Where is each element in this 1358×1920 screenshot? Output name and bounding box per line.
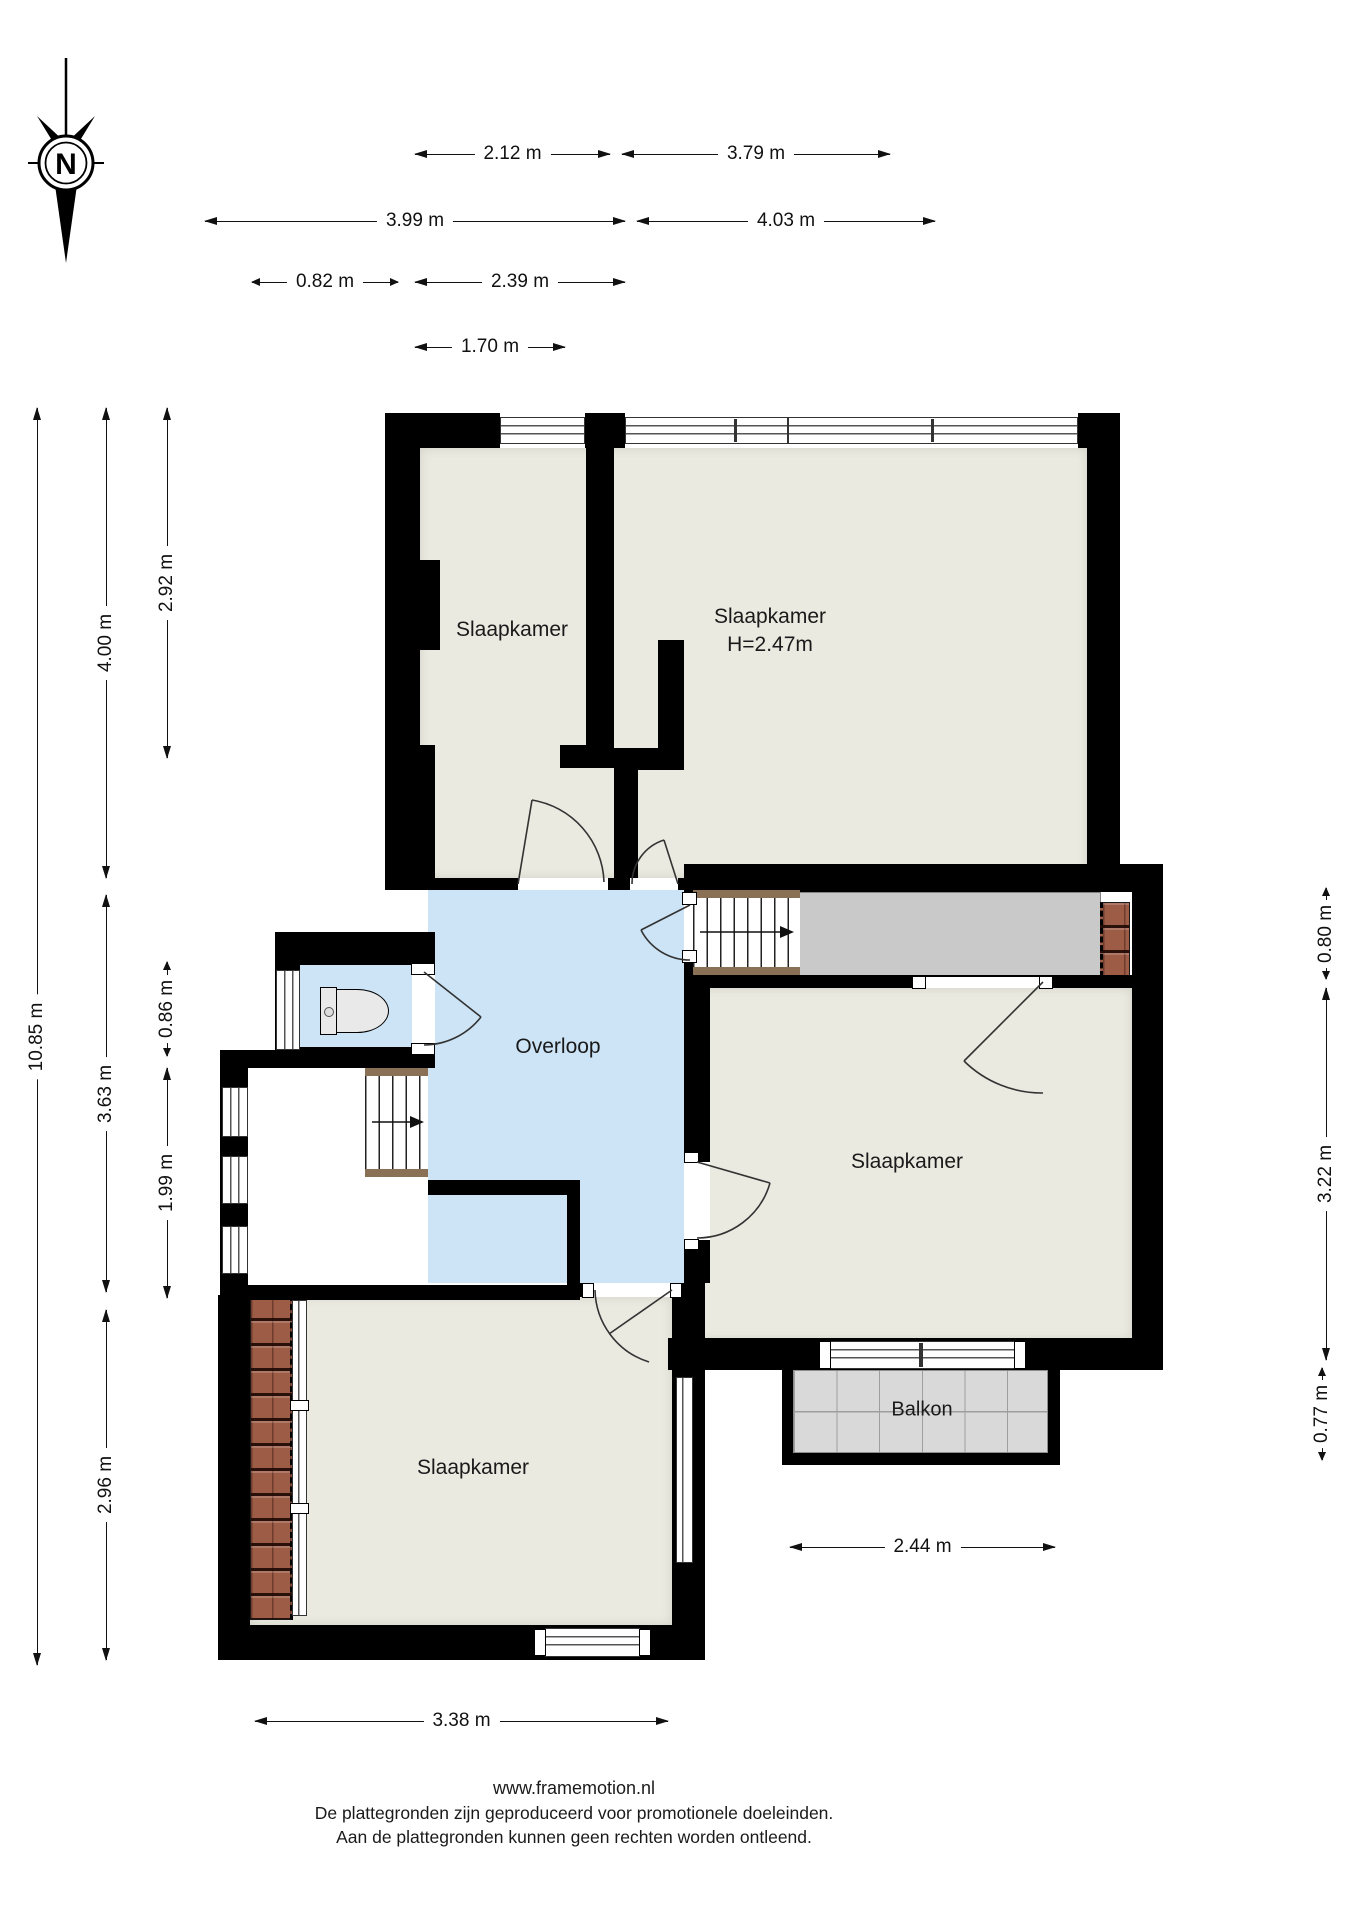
wall-segment [684, 962, 710, 1162]
wall-segment [560, 745, 614, 768]
room-label-balkon: Balkon [891, 1399, 952, 1422]
window [222, 1156, 248, 1204]
staircase-lower-flight [365, 1068, 428, 1177]
dimension: 3.63 m [106, 895, 107, 1292]
wall-segment [684, 864, 1163, 892]
dimension: 3.79 m [622, 154, 890, 155]
room-label-bedroom-top-right-height: H=2.47m [727, 633, 813, 657]
window [222, 1226, 248, 1274]
floor-overloop [428, 890, 684, 1283]
door-frame [682, 892, 697, 905]
window [500, 417, 585, 444]
compass-north-icon: N [18, 53, 114, 268]
wall-segment [586, 448, 614, 748]
toilet-button-icon [324, 1007, 334, 1017]
footer-line: De plattegronden zijn geproduceerd voor … [0, 1801, 1148, 1825]
door-opening [630, 878, 678, 890]
footer-disclaimer: www.framemotion.nl De plattegronden zijn… [0, 1775, 1148, 1849]
wall-segment [690, 975, 1132, 988]
wall-segment [782, 1453, 1060, 1465]
roof-tiles-left [250, 1295, 293, 1620]
dimension: 0.80 m [1326, 888, 1327, 979]
wall-segment [684, 1283, 705, 1338]
dimension: 0.77 m [1322, 1368, 1323, 1460]
floorplan-canvas: N [0, 0, 1358, 1920]
dimension: 2.92 m [167, 408, 168, 758]
window-mullion [919, 1343, 923, 1367]
wall-segment [614, 748, 684, 770]
dimension: 4.03 m [637, 221, 935, 222]
wall-segment [608, 878, 630, 890]
door-frame [1039, 976, 1053, 989]
door-opening [684, 1162, 710, 1240]
dimension: 3.22 m [1326, 988, 1327, 1360]
window [545, 1628, 640, 1657]
door-opening [412, 974, 435, 1044]
wall-segment [585, 413, 625, 448]
roof-tiles-right [1100, 902, 1130, 977]
dimension: 4.00 m [106, 408, 107, 878]
door-frame [912, 976, 926, 989]
svg-text:N: N [55, 148, 77, 181]
door-opening [925, 977, 1040, 988]
door-frame [411, 963, 435, 975]
window-frame [639, 1629, 651, 1656]
wall-segment [1048, 1370, 1060, 1458]
footer-line: Aan de plattegronden kunnen geen rechten… [0, 1825, 1148, 1849]
room-label-bedroom-top-right: Slaapkamer [714, 605, 826, 629]
room-label-bedroom-top-left: Slaapkamer [456, 618, 568, 642]
wall-segment [614, 770, 638, 878]
dimension: 3.99 m [205, 221, 625, 222]
door-frame [411, 1043, 435, 1055]
wall-segment [1132, 868, 1163, 1370]
room-label-bedroom-right: Slaapkamer [851, 1150, 963, 1174]
window-mullion [931, 419, 934, 442]
window-frame [534, 1629, 546, 1656]
dimension: 10.85 m [37, 408, 38, 1665]
dimension: 1.99 m [167, 1068, 168, 1298]
window-frame [290, 1400, 309, 1411]
door-frame [670, 1283, 682, 1298]
window [222, 1087, 248, 1137]
window [625, 417, 788, 444]
room-label-bedroom-bottom-left: Slaapkamer [417, 1456, 529, 1480]
staircase-main [693, 890, 800, 975]
dimension: 2.12 m [415, 154, 610, 155]
wall-segment [782, 1370, 793, 1458]
floor-bedrooms-top [420, 448, 1087, 878]
wall-segment [1087, 413, 1120, 873]
window-toilet [276, 970, 300, 1050]
wall-segment [248, 1285, 580, 1300]
door-frame [582, 1283, 594, 1298]
dimension: 2.96 m [106, 1310, 107, 1660]
dimension: 0.86 m [167, 962, 168, 1056]
window-strip [292, 1300, 307, 1616]
door-opening [518, 878, 608, 890]
dimension: 3.38 m [255, 1721, 668, 1722]
dimension: 2.39 m [415, 282, 625, 283]
door-frame [684, 1152, 699, 1163]
wall-segment [428, 1180, 580, 1195]
footer-website: www.framemotion.nl [0, 1775, 1148, 1801]
dimension: 2.44 m [790, 1547, 1055, 1548]
window-frame [290, 1503, 309, 1514]
door-frame [682, 950, 697, 963]
dimension: 1.70 m [415, 347, 565, 348]
door-opening [593, 1283, 672, 1297]
window [676, 1377, 693, 1563]
wall-segment [218, 1295, 250, 1660]
dimension: 0.82 m [252, 282, 398, 283]
wall-segment [435, 878, 518, 890]
wall-segment [400, 745, 435, 890]
door-frame [684, 1239, 699, 1250]
roof-void-strip [800, 893, 1100, 977]
wall-chimney [405, 560, 440, 650]
window-frame [1014, 1341, 1026, 1369]
wall-segment [275, 932, 435, 965]
window-frame [819, 1341, 831, 1369]
room-label-overloop: Overloop [515, 1035, 600, 1059]
window-mullion [734, 419, 737, 442]
